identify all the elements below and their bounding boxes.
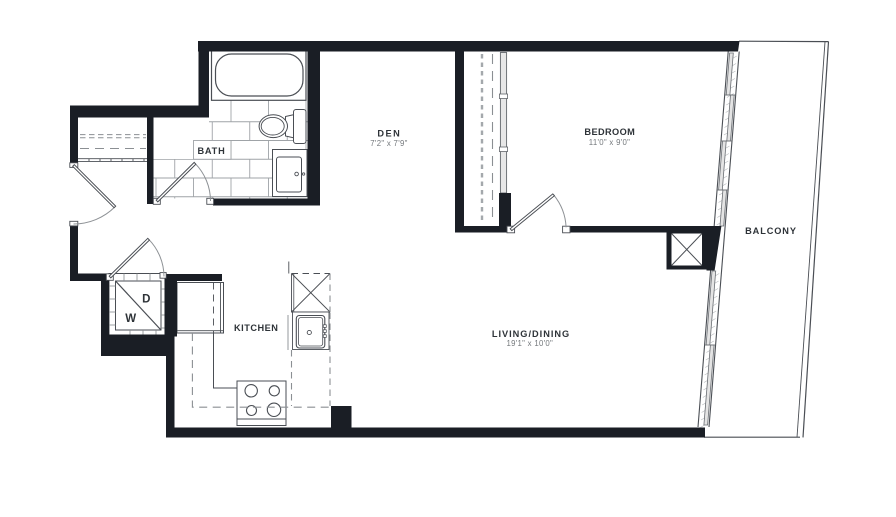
svg-text:19'1" x 10'0": 19'1" x 10'0"	[506, 339, 553, 348]
svg-text:7'2" x 7'9": 7'2" x 7'9"	[370, 139, 407, 148]
svg-text:D: D	[142, 294, 150, 306]
svg-text:BEDROOM: BEDROOM	[584, 127, 635, 137]
svg-text:BATH: BATH	[197, 146, 225, 156]
svg-text:DEN: DEN	[377, 128, 401, 138]
svg-text:LIVING/DINING: LIVING/DINING	[492, 329, 570, 339]
svg-text:KITCHEN: KITCHEN	[234, 323, 278, 333]
svg-text:W: W	[125, 313, 136, 325]
svg-text:11'0" x 9'0": 11'0" x 9'0"	[589, 138, 630, 147]
svg-text:BALCONY: BALCONY	[745, 226, 797, 236]
